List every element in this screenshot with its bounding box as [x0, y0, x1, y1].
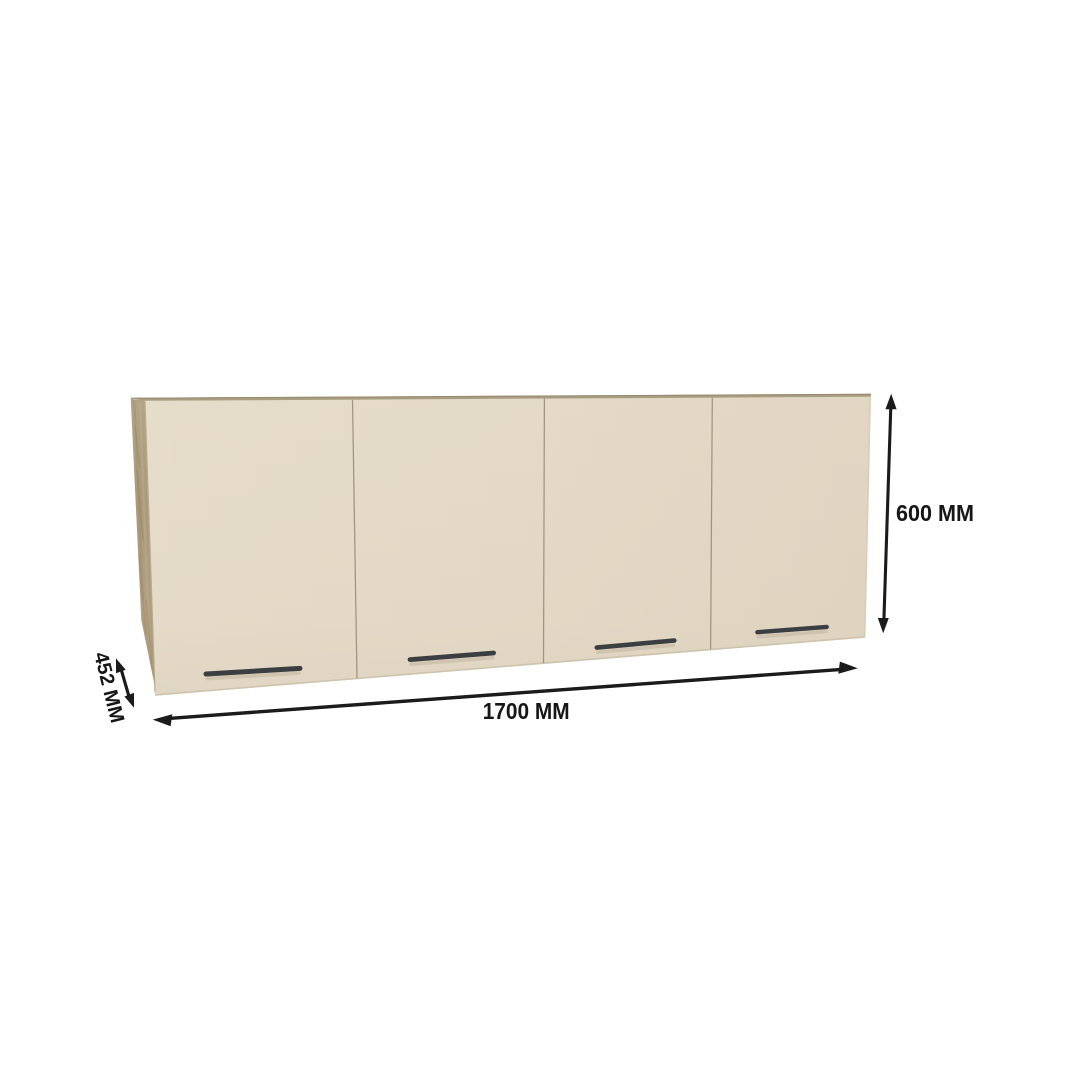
- svg-text:600 MM: 600 MM: [896, 500, 974, 526]
- svg-text:1700 MM: 1700 MM: [483, 698, 570, 724]
- svg-text:452 MM: 452 MM: [89, 650, 128, 725]
